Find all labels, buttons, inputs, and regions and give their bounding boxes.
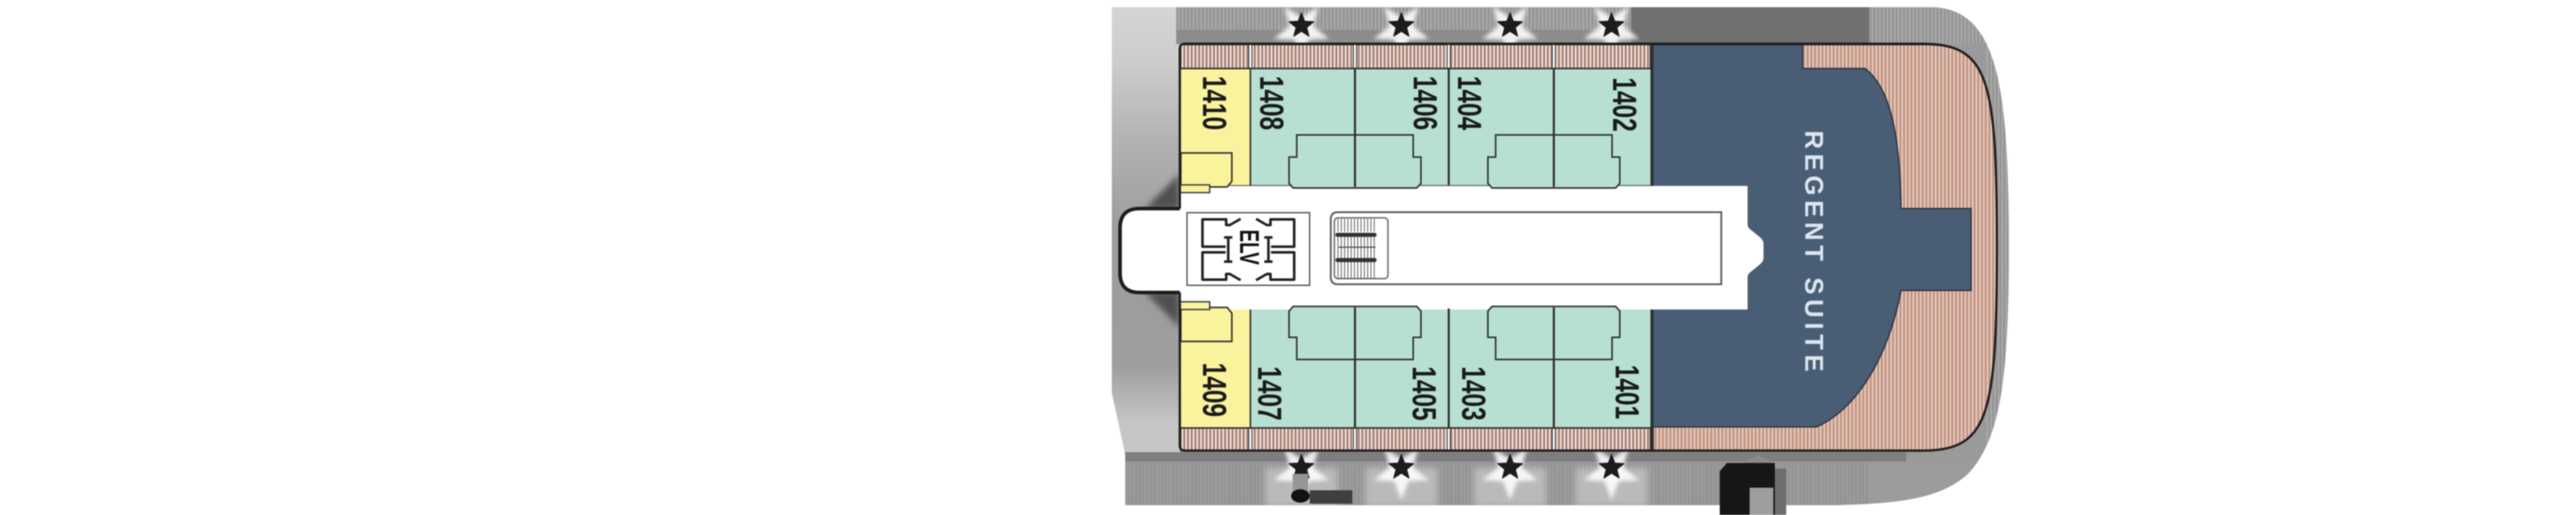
svg-text:1410: 1410: [1195, 76, 1233, 130]
svg-text:ELV: ELV: [1234, 230, 1264, 265]
svg-text:1409: 1409: [1195, 363, 1233, 417]
svg-text:1401: 1401: [1608, 365, 1646, 419]
svg-text:1407: 1407: [1250, 366, 1288, 421]
svg-text:REGENT SUITE: REGENT SUITE: [1800, 130, 1828, 376]
svg-text:1406: 1406: [1406, 76, 1444, 130]
svg-text:1404: 1404: [1450, 76, 1488, 130]
svg-text:1408: 1408: [1252, 76, 1290, 130]
svg-text:1405: 1405: [1405, 366, 1443, 421]
svg-text:1403: 1403: [1454, 366, 1492, 421]
svg-text:1402: 1402: [1605, 77, 1643, 132]
